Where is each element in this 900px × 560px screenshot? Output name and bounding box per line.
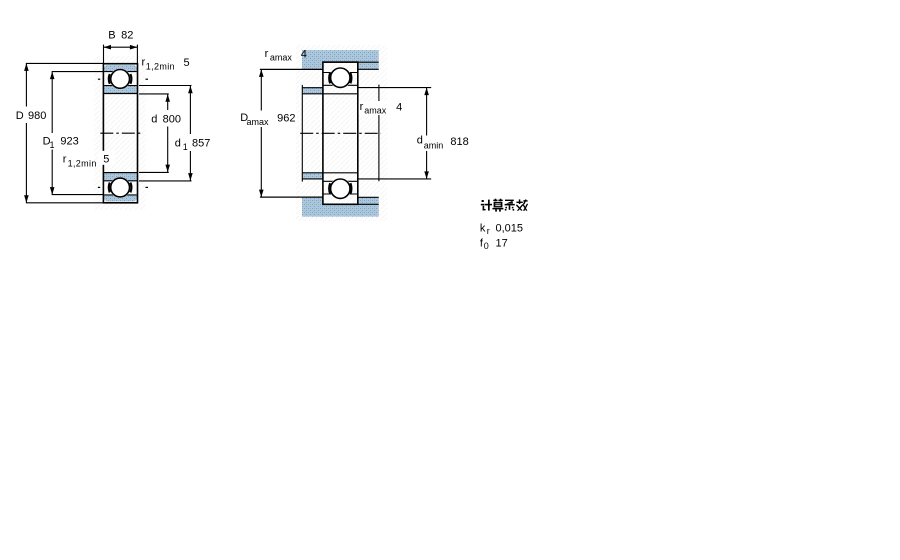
svg-text:0: 0: [484, 241, 489, 251]
svg-text:5: 5: [184, 57, 190, 69]
svg-text:4: 4: [396, 101, 402, 113]
svg-text:818: 818: [450, 136, 468, 148]
svg-text:k: k: [480, 222, 486, 234]
svg-text:amin: amin: [424, 140, 444, 150]
svg-text:1,2min: 1,2min: [68, 158, 97, 168]
svg-text:amax: amax: [364, 106, 387, 116]
svg-text:B: B: [108, 29, 115, 41]
svg-text:amax: amax: [270, 53, 293, 63]
svg-text:D: D: [16, 110, 24, 122]
svg-text:r: r: [265, 48, 269, 60]
svg-text:5: 5: [103, 153, 109, 165]
svg-text:r: r: [487, 226, 490, 236]
svg-text:d: d: [175, 137, 181, 149]
svg-text:923: 923: [60, 135, 78, 147]
svg-text:980: 980: [28, 110, 46, 122]
svg-text:1: 1: [50, 140, 55, 150]
svg-text:0,015: 0,015: [496, 222, 524, 234]
svg-text:d: d: [151, 113, 157, 125]
svg-text:82: 82: [121, 29, 133, 41]
svg-text:r: r: [360, 101, 364, 113]
svg-text:857: 857: [192, 137, 210, 149]
svg-text:d: d: [417, 135, 423, 147]
svg-text:amax: amax: [247, 117, 270, 127]
svg-text:1: 1: [183, 142, 188, 152]
svg-text:r: r: [63, 154, 67, 166]
svg-text:962: 962: [277, 113, 295, 125]
svg-text:17: 17: [496, 237, 508, 249]
svg-text:1,2min: 1,2min: [146, 61, 175, 71]
svg-text:800: 800: [163, 113, 181, 125]
svg-text:4: 4: [301, 49, 307, 61]
